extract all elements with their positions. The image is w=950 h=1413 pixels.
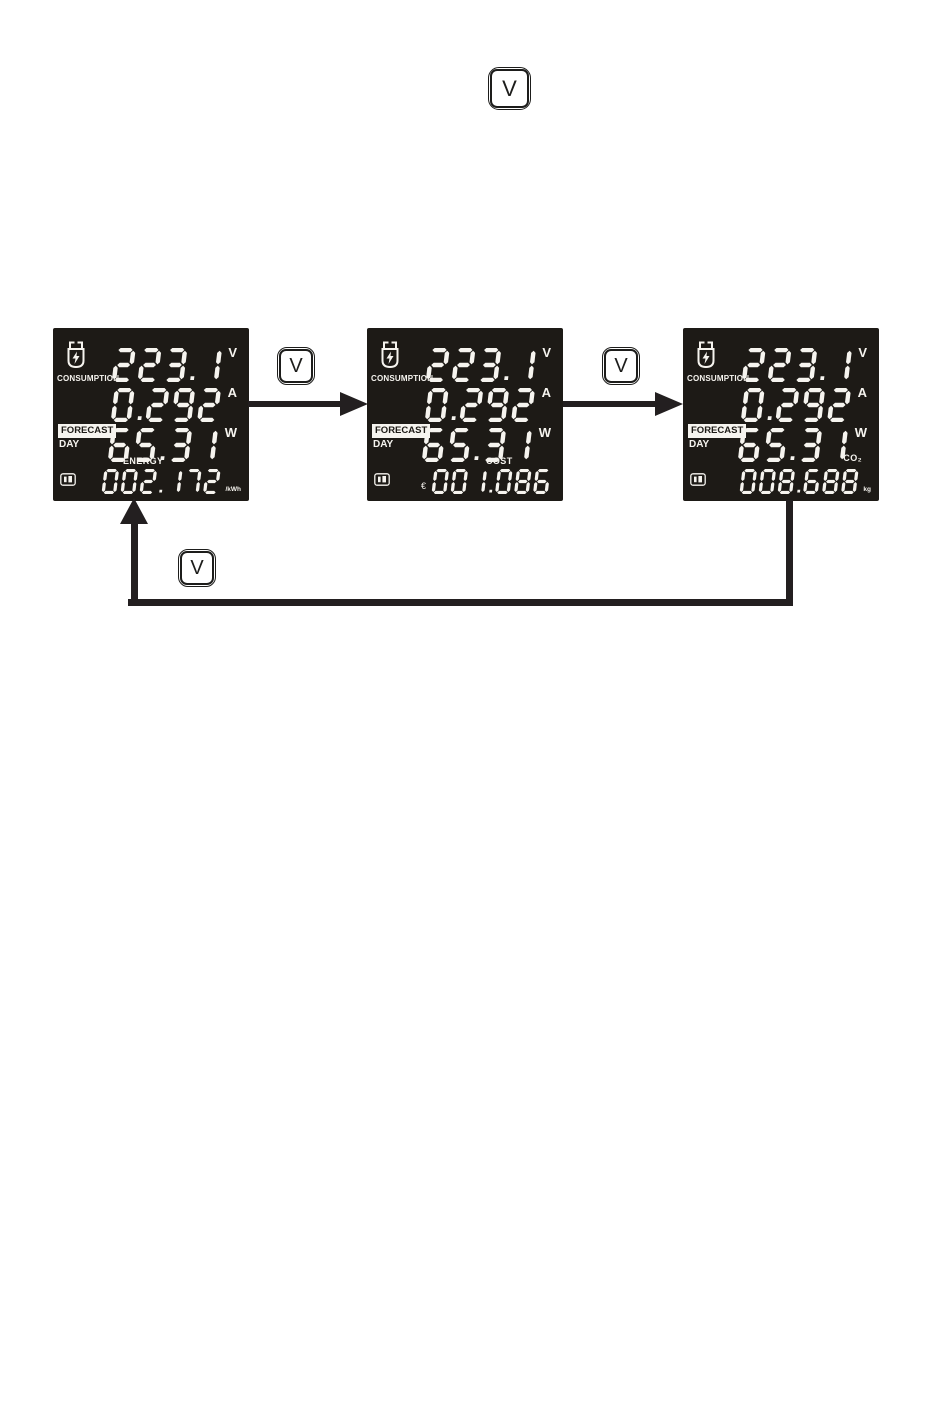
power-value bbox=[733, 428, 851, 462]
co2-value bbox=[736, 469, 861, 494]
memory-card-icon bbox=[690, 473, 706, 486]
return-line-bottom bbox=[128, 599, 793, 606]
memory-card-icon bbox=[60, 473, 76, 486]
power-row: W bbox=[417, 428, 551, 462]
v-key-button-between-2-3[interactable]: V bbox=[602, 347, 640, 385]
voltage-value bbox=[737, 348, 855, 382]
voltage-unit: V bbox=[542, 346, 551, 359]
power-unit: W bbox=[539, 426, 551, 439]
current-row: A bbox=[420, 388, 551, 422]
flow-arrow-1-shaft bbox=[248, 401, 342, 407]
power-unit: W bbox=[855, 426, 867, 439]
flow-arrow-2-shaft bbox=[563, 401, 657, 407]
energy-label: ENERGY bbox=[123, 457, 163, 466]
v-key-label: V bbox=[289, 356, 302, 376]
euro-currency-symbol: € bbox=[421, 482, 426, 491]
voltage-row: V bbox=[421, 348, 551, 382]
cost-label: COST bbox=[486, 457, 513, 466]
v-key-button-top[interactable]: V bbox=[488, 67, 531, 110]
lcd-display-energy: CONSUMPTION V A FORECAST DAY W ENERGY /k… bbox=[53, 328, 249, 501]
current-value bbox=[106, 388, 224, 422]
day-label: DAY bbox=[373, 440, 393, 450]
current-row: A bbox=[106, 388, 237, 422]
memory-card-icon bbox=[374, 473, 390, 486]
voltage-row: V bbox=[107, 348, 237, 382]
voltage-unit: V bbox=[228, 346, 237, 359]
lcd-display-cost: CONSUMPTION V A FORECAST DAY W COST € bbox=[367, 328, 563, 501]
v-key-button-between-1-2[interactable]: V bbox=[277, 347, 315, 385]
energy-row: /kWh bbox=[98, 469, 241, 494]
co2-label: CO₂ bbox=[843, 454, 862, 463]
v-key-label: V bbox=[190, 558, 203, 578]
co2-unit: kg bbox=[863, 487, 871, 494]
return-arrow-head bbox=[120, 498, 148, 524]
cost-row: € bbox=[421, 469, 553, 494]
power-plug-icon bbox=[693, 341, 719, 372]
v-key-button-return[interactable]: V bbox=[178, 549, 216, 587]
voltage-row: V bbox=[737, 348, 867, 382]
voltage-value bbox=[107, 348, 225, 382]
flow-arrow-2-head bbox=[655, 392, 683, 416]
power-unit: W bbox=[225, 426, 237, 439]
energy-value bbox=[98, 469, 223, 494]
v-key-label: V bbox=[614, 356, 627, 376]
current-unit: A bbox=[228, 386, 237, 399]
voltage-value bbox=[421, 348, 539, 382]
energy-unit: /kWh bbox=[225, 487, 241, 494]
flow-arrow-1-head bbox=[340, 392, 368, 416]
co2-row: kg bbox=[736, 469, 871, 494]
power-plug-icon bbox=[377, 341, 403, 372]
current-row: A bbox=[736, 388, 867, 422]
day-label: DAY bbox=[689, 440, 709, 450]
cost-value bbox=[428, 469, 553, 494]
power-value bbox=[417, 428, 535, 462]
lcd-display-co2: CONSUMPTION V A FORECAST DAY W CO₂ kg bbox=[683, 328, 879, 501]
return-line-right bbox=[786, 500, 793, 606]
current-unit: A bbox=[858, 386, 867, 399]
day-label: DAY bbox=[59, 440, 79, 450]
current-value bbox=[420, 388, 538, 422]
current-value bbox=[736, 388, 854, 422]
voltage-unit: V bbox=[858, 346, 867, 359]
return-line-left bbox=[131, 520, 138, 606]
v-key-label: V bbox=[502, 78, 517, 100]
power-plug-icon bbox=[63, 341, 89, 372]
manual-diagram-page: V CONSUMPTION V A FORECAST DAY W ENERGY bbox=[0, 0, 950, 1413]
current-unit: A bbox=[542, 386, 551, 399]
